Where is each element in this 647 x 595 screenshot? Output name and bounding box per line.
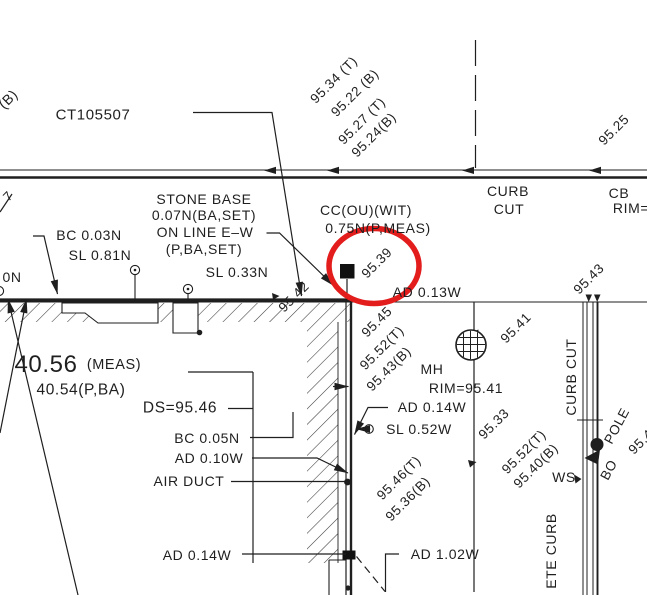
label-curb-cut-top-line1: CURB xyxy=(487,184,529,198)
label-stone-base-line2: 0.07N(BA,SET) xyxy=(152,208,256,222)
label-air-duct: AIR DUCT xyxy=(154,474,225,488)
label-ct-number: CT105507 xyxy=(56,108,131,123)
label-ad-102w: AD 1.02W xyxy=(411,547,480,561)
label-bo: BO xyxy=(598,458,620,483)
label-40-56: 40.56 xyxy=(14,353,77,377)
label-40-54: 40.54(P,BA) xyxy=(36,382,125,398)
label-95-41-street: 95.41 xyxy=(498,310,534,346)
label-95-43-curb: 95.43 xyxy=(571,261,607,297)
label-ad-013w: AD 0.13W xyxy=(393,285,462,299)
label-ad-014w-mid: AD 0.14W xyxy=(398,400,467,414)
label-ad-010w: AD 0.10W xyxy=(175,451,244,465)
label-ad-014w-bottom: AD 0.14W xyxy=(163,548,232,562)
label-stone-base-line3: ON LINE E–W xyxy=(157,225,254,239)
label-ws: WS xyxy=(552,470,576,484)
survey-drawing: (B)CT10550795.34 (T)95.22 (B)95.27 (T)95… xyxy=(0,0,647,595)
label-95-33: 95.33 xyxy=(476,406,512,442)
label-sl-033n: SL 0.33N xyxy=(206,265,269,279)
label-40-56-meas: (MEAS) xyxy=(87,358,141,373)
label-ds-9546: DS=95.46 xyxy=(143,400,217,416)
label-sl-081n: SL 0.81N xyxy=(69,248,132,262)
label-pole: POLE xyxy=(602,406,632,446)
label-curb-cut-top-line2: CUT xyxy=(494,202,525,216)
label-95-42: 95.42 xyxy=(276,279,312,315)
label-stone-base-line1: STONE BASE xyxy=(156,192,251,206)
label-cb: CB xyxy=(609,186,630,200)
label-stone-base-line4: (P,BA,SET) xyxy=(166,242,243,256)
label-edge-fragment: 7 xyxy=(1,189,16,204)
label-mh-rim: RIM=95.41 xyxy=(429,381,503,395)
label-sl-052w: SL 0.52W xyxy=(386,422,452,436)
label-b-fragment: (B) xyxy=(0,87,20,111)
label-mh: MH xyxy=(421,362,444,376)
annotation-labels: (B)CT10550795.34 (T)95.22 (B)95.27 (T)95… xyxy=(0,0,647,595)
label-ete-curb-vertical: ETE CURB xyxy=(544,513,558,589)
label-075n-p-meas: 0.75N(P,MEAS) xyxy=(325,221,431,235)
label-bc-003n: BC 0.03N xyxy=(56,228,122,242)
label-curb-cut-vertical: CURB CUT xyxy=(564,338,578,415)
label-95-25: 95.25 xyxy=(596,112,632,148)
label-bc-005n: BC 0.05N xyxy=(174,431,240,445)
label-95-4-edge: 95.4 xyxy=(626,427,647,457)
label-95-39: 95.39 xyxy=(359,245,395,281)
label-cb-rim: RIM= xyxy=(613,201,647,215)
label-cc-ou-wit: CC(OU)(WIT) xyxy=(320,203,412,217)
label-0n: 0N xyxy=(2,270,21,284)
